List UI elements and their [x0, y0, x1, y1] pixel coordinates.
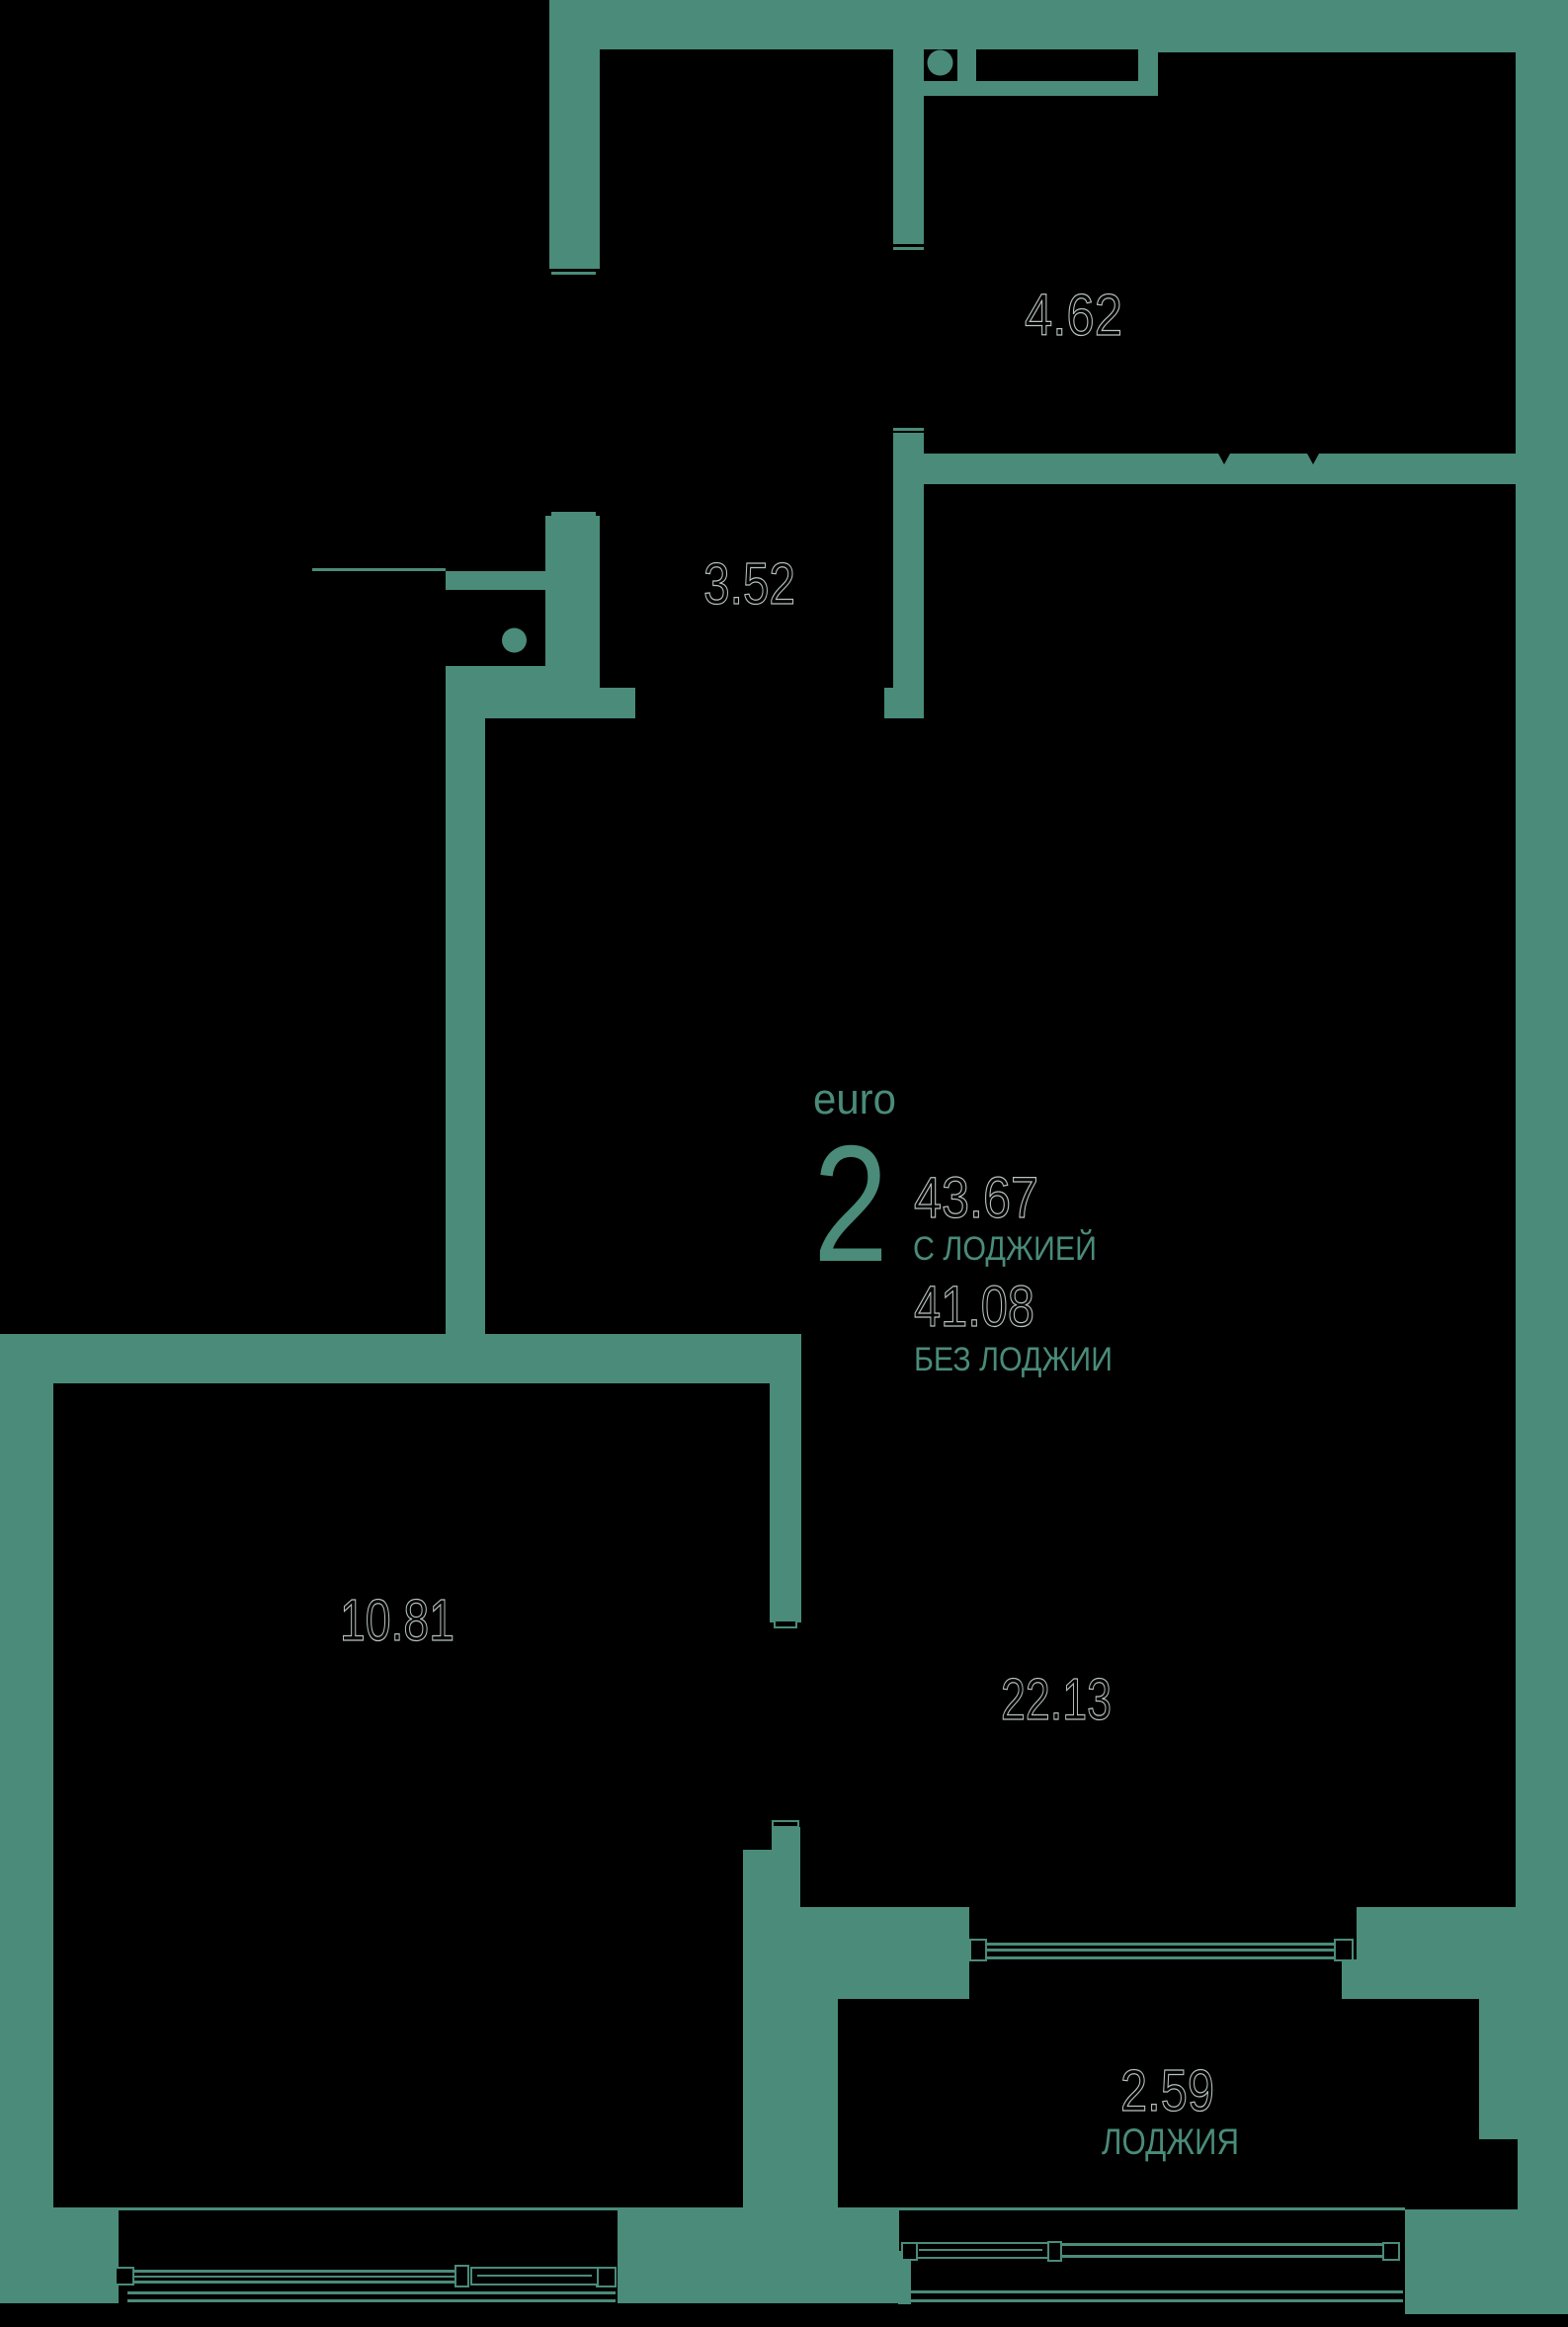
svg-text:ЛОДЖИЯ: ЛОДЖИЯ	[1102, 2121, 1239, 2162]
svg-text:2.59: 2.59	[1120, 2058, 1214, 2123]
svg-text:10.81: 10.81	[340, 1588, 454, 1653]
svg-text:3.52: 3.52	[703, 551, 795, 617]
svg-text:22.13: 22.13	[1001, 1667, 1112, 1732]
svg-text:41.08: 41.08	[914, 1275, 1034, 1339]
svg-text:С ЛОДЖИЕЙ: С ЛОДЖИЕЙ	[913, 1230, 1097, 1268]
svg-text:4.62: 4.62	[1025, 283, 1122, 348]
svg-text:БЕЗ ЛОДЖИИ: БЕЗ ЛОДЖИИ	[914, 1341, 1113, 1378]
svg-text:43.67: 43.67	[914, 1166, 1038, 1230]
svg-text:2: 2	[813, 1111, 888, 1296]
